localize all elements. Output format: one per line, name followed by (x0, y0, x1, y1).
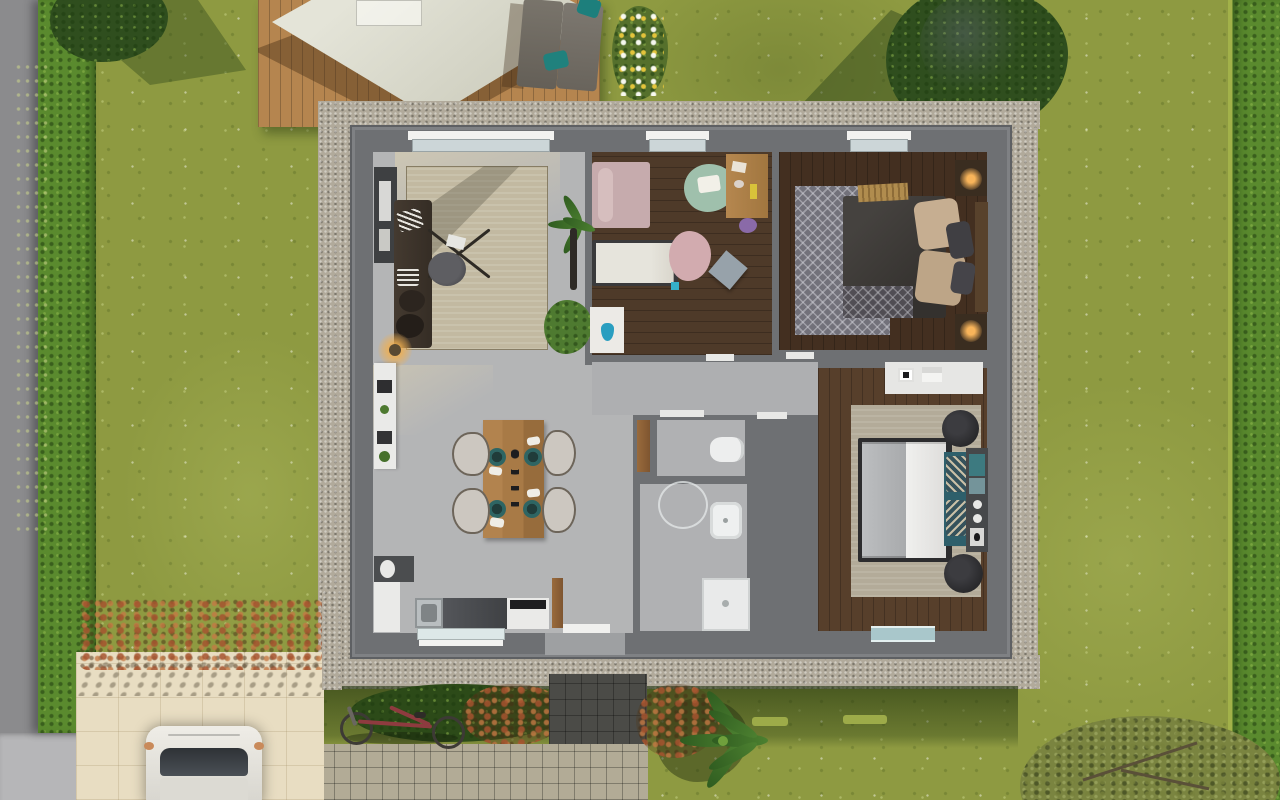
plate-teal (523, 500, 541, 518)
car-roof (160, 778, 248, 800)
lamp-lit (960, 168, 982, 190)
sink-bowl (421, 604, 437, 622)
built-in-oven (377, 431, 392, 444)
sink-unit (415, 598, 443, 628)
daybed-bolster (598, 168, 613, 222)
gravel-walk (322, 590, 342, 690)
door-sill-wc (660, 410, 704, 417)
stepping-dash (843, 715, 887, 724)
teal-storage-box (969, 454, 985, 476)
round-shower-outline (658, 481, 708, 529)
counter-dark-left (374, 556, 414, 582)
teal-cube-toy (671, 282, 679, 290)
decor-dot (973, 514, 982, 523)
gravel-right (1008, 129, 1038, 689)
car-mirror (254, 742, 264, 750)
decor-dot (973, 500, 982, 509)
desk-toys (734, 180, 744, 188)
entrance-step (545, 633, 625, 655)
round-tray (428, 252, 466, 286)
flower-bed-blooms (616, 10, 664, 96)
napkin (527, 488, 541, 497)
hedge-right-edge-highlight (1228, 0, 1233, 760)
window-kids-glass (649, 139, 706, 152)
floor-plan-scene (0, 0, 1280, 800)
bed3-duvet-white (906, 442, 946, 558)
palm-plant (678, 688, 768, 798)
pillow-on-rug (697, 175, 721, 194)
bicycle (336, 698, 470, 746)
entry-path-dark-pavers (549, 674, 647, 748)
terrace-light-pavers (318, 744, 648, 800)
kids-desk (726, 154, 768, 218)
black-pouf (944, 554, 983, 593)
shelf-plant (380, 405, 389, 414)
desk-notebook-yellow (750, 184, 757, 199)
car-windshield (160, 748, 248, 776)
plate-teal (524, 448, 542, 466)
toilet (710, 437, 744, 462)
window-master-glass (850, 139, 908, 152)
car-mirror (144, 742, 154, 750)
patterned-cushion (946, 456, 966, 492)
washbasin (710, 502, 742, 539)
dining-chair (542, 430, 576, 476)
kids-bed-mattress (596, 243, 674, 283)
basin-white (380, 560, 395, 578)
door-sill-master (786, 352, 814, 359)
car-hood-line (168, 734, 240, 736)
bicycle-seat (414, 712, 426, 718)
lamp-lit (960, 320, 982, 342)
teal-vase-toy (601, 323, 614, 341)
plate-teal (488, 500, 506, 518)
dining-chair (452, 432, 490, 476)
bed3-blanket-gray (862, 442, 906, 558)
shrub-shadow (74, 660, 332, 696)
patterned-cushion (946, 500, 966, 536)
door-sill-bedroom3 (757, 412, 787, 419)
bicycle-wheel (432, 716, 465, 749)
cooktop-counter (443, 598, 507, 629)
decor-tray-cat (970, 528, 984, 546)
tv-screen (379, 181, 391, 221)
duvet-fold (843, 286, 913, 318)
window-bedroom3-teal (871, 626, 935, 642)
plate-teal (488, 448, 506, 466)
dining-chair (542, 487, 576, 533)
gravel-top (318, 101, 1040, 129)
sidewalk (0, 733, 86, 800)
teal-cushion-strip (944, 452, 968, 546)
canopy-skylight (356, 0, 422, 26)
storage-headboard-bench (966, 448, 988, 552)
shower-drain (722, 600, 729, 607)
wc-door-open (637, 420, 650, 472)
window-living-glass (412, 139, 550, 152)
bedroom3-desk (885, 362, 983, 394)
desk-pad (922, 367, 942, 382)
wood-console (562, 216, 586, 300)
picture-frame (898, 368, 914, 382)
decor-books (379, 229, 390, 251)
pink-daybed (592, 162, 650, 228)
desk-papers (731, 161, 747, 173)
table-runner-candles (511, 448, 519, 514)
sofa-cushion-striped (397, 268, 419, 286)
shelf-plant (379, 451, 390, 462)
appliance-panel (510, 600, 546, 609)
window-kitchen-sill (419, 640, 503, 646)
shower-tray (702, 578, 750, 631)
base-cabinet-white (374, 582, 400, 632)
dining-chair (452, 488, 490, 534)
teal-storage-box (969, 478, 985, 494)
kids-bed (592, 240, 678, 286)
hallway-floor (592, 362, 818, 415)
white-mat (590, 307, 624, 353)
napkin (489, 466, 503, 476)
entrance-threshold (563, 624, 610, 633)
coffee-machine (377, 380, 392, 393)
door-sill-kids (706, 354, 734, 361)
gold-throw (858, 183, 909, 203)
floor-lamp-shade (389, 344, 401, 356)
entrance-door-leaf (552, 578, 563, 628)
window-kitchen-glass (417, 628, 505, 640)
hedge-left-tufts (14, 60, 48, 540)
headboard (975, 202, 988, 312)
dishwasher (507, 598, 549, 629)
hedge-right (1232, 0, 1280, 800)
console-decor (570, 228, 577, 290)
car (146, 726, 262, 800)
basin-drain (723, 518, 728, 523)
bicycle-wheel (340, 712, 373, 745)
tall-cabinet-column (374, 363, 396, 469)
black-pouf (942, 410, 979, 447)
